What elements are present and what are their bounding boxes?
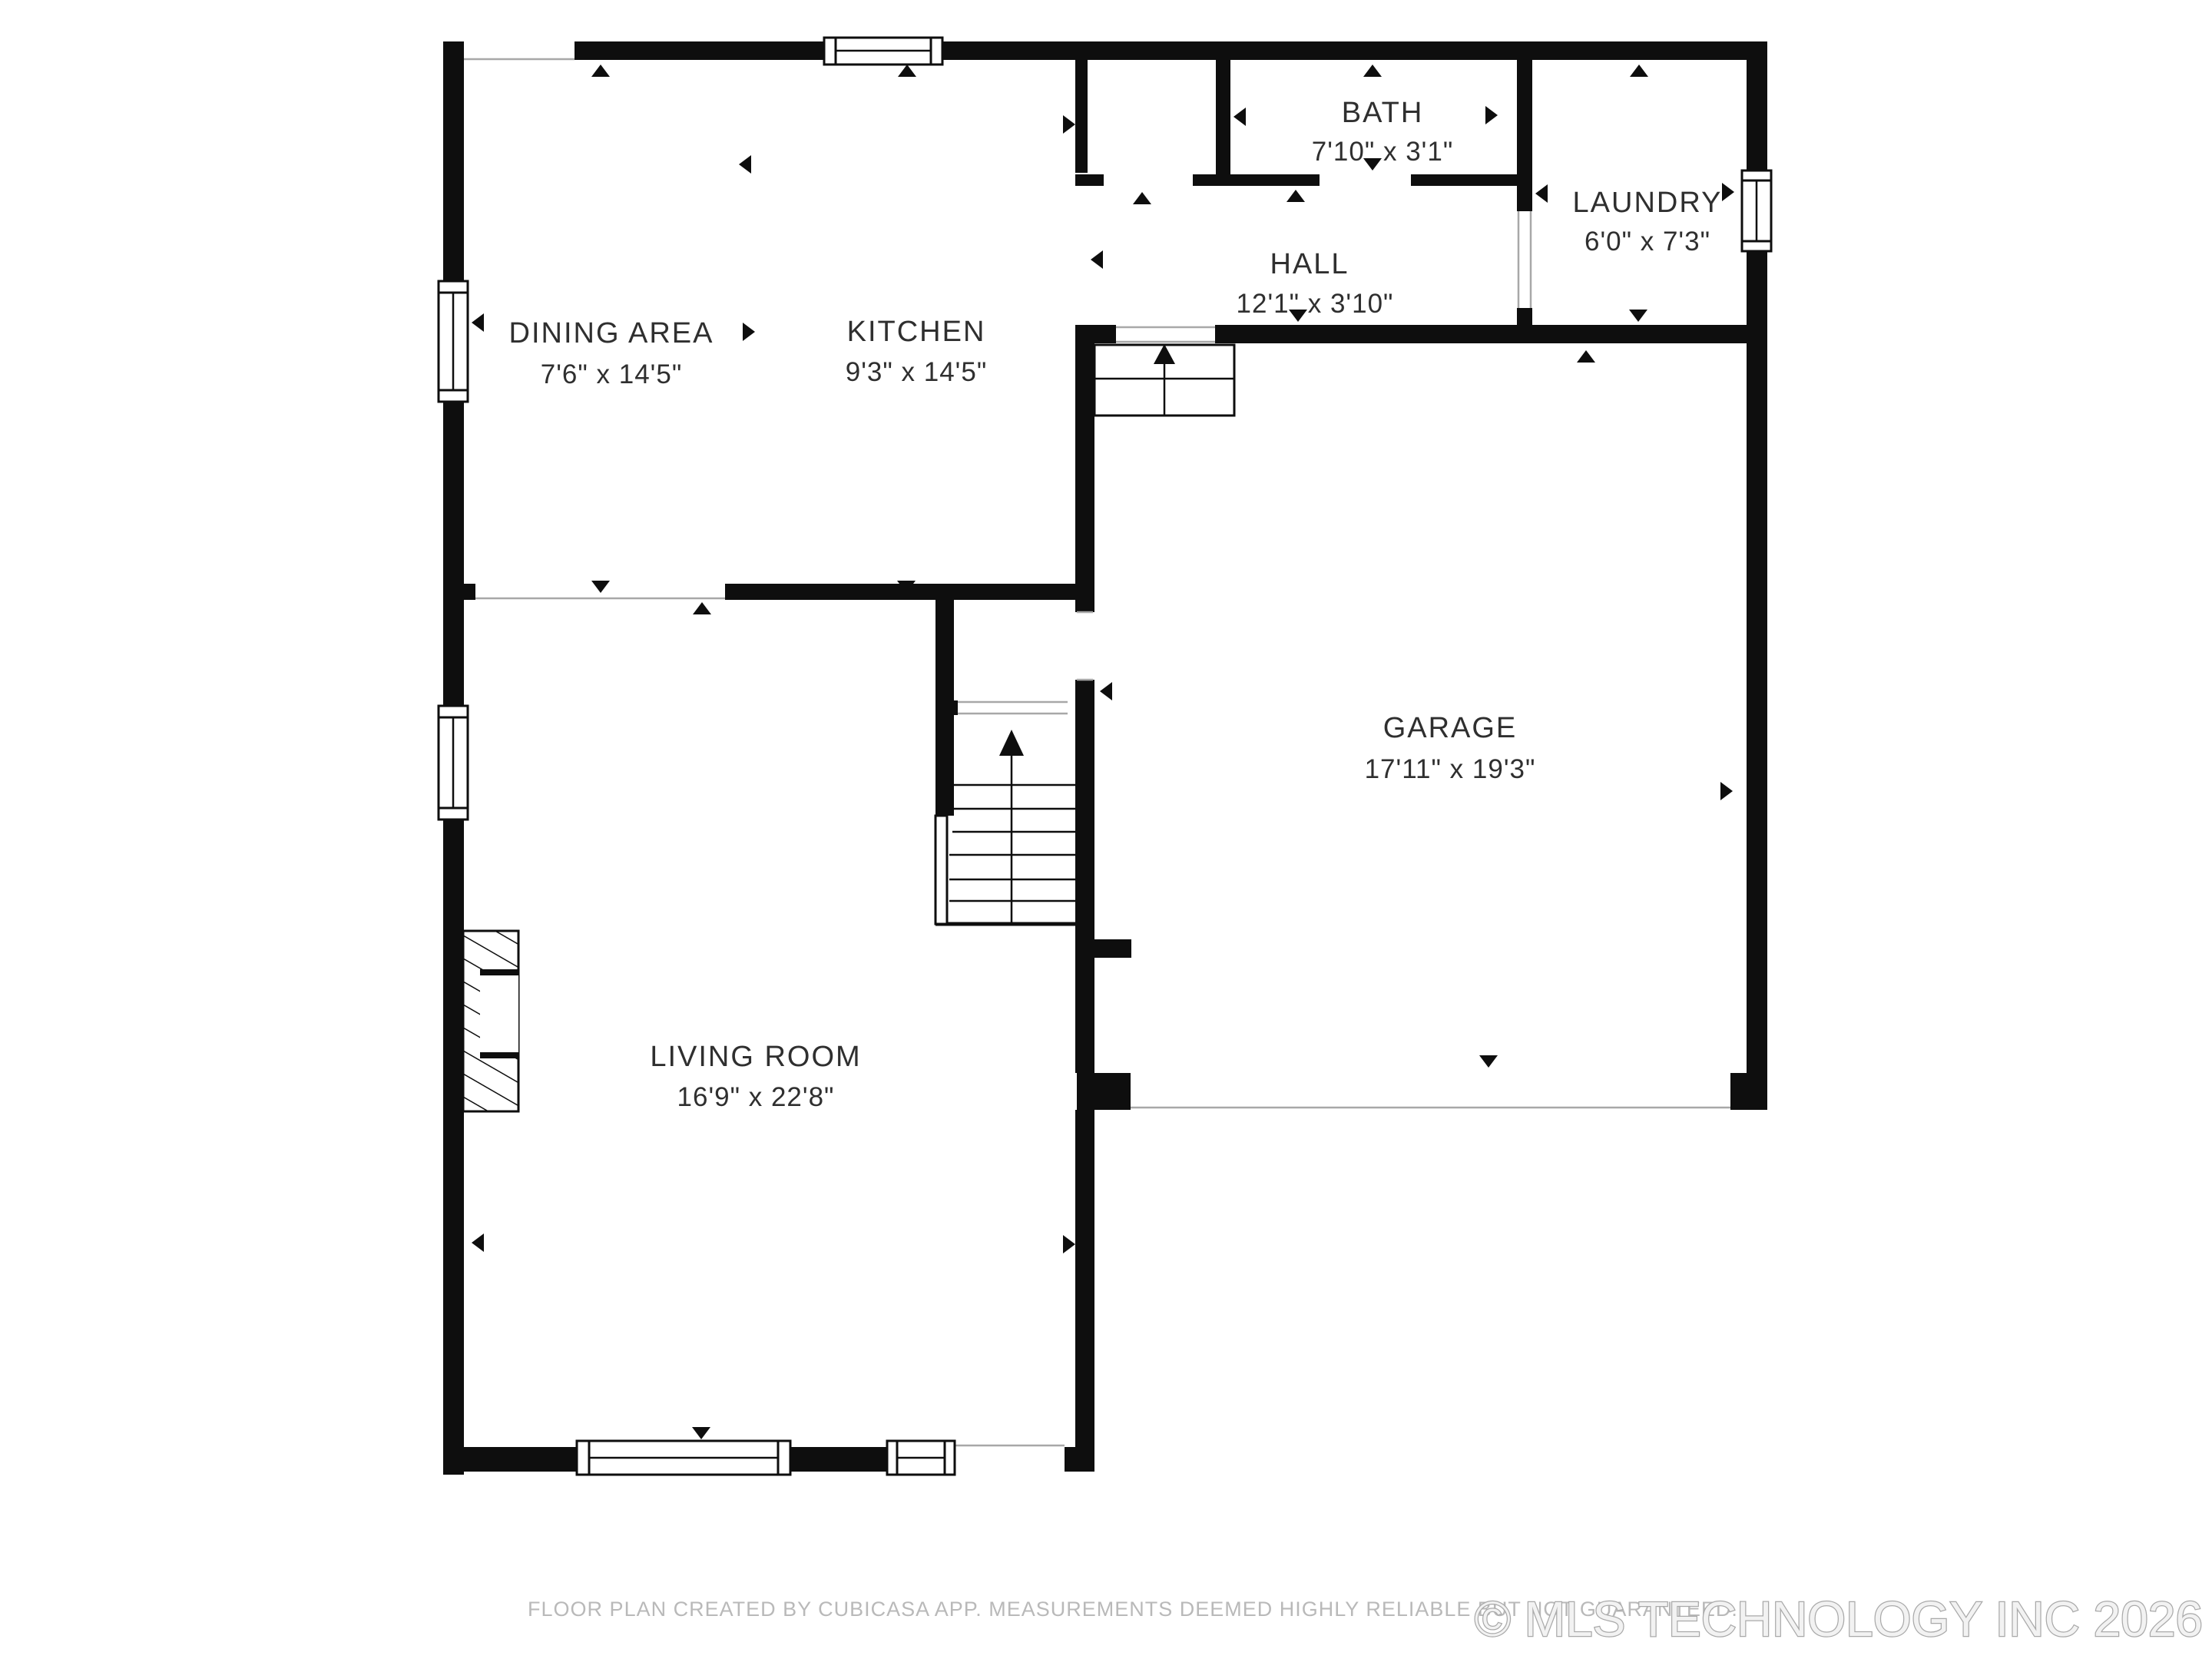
room-label-kitchen: KITCHEN [847, 316, 986, 348]
room-label-garage: GARAGE [1383, 712, 1518, 744]
living-room-window-left [439, 706, 468, 820]
door-arrow-icons [472, 65, 1734, 1439]
arrow-left-icon [739, 155, 751, 174]
arrow-left-icon [1233, 108, 1246, 126]
arrow-left-icon [1091, 250, 1103, 269]
room-label-living: LIVING ROOM [650, 1041, 861, 1073]
arrow-up-icon [1286, 190, 1305, 202]
living-room-window-bottom-small [887, 1441, 955, 1475]
watermark-text: © MLS TECHNOLOGY INC 2026 [1475, 1591, 2203, 1647]
footer: FLOOR PLAN CREATED BY CUBICASA APP. MEAS… [528, 1591, 2203, 1647]
arrow-left-icon [472, 313, 484, 332]
arrow-down-icon [1629, 310, 1647, 322]
arrow-up-icon [1363, 65, 1382, 77]
arrow-up-icon [1577, 350, 1595, 363]
room-dims-dining: 7'6" x 14'5" [541, 359, 683, 389]
arrow-right-icon [1722, 183, 1734, 201]
floor-plan-page: DINING AREA 7'6" x 14'5" KITCHEN 9'3" x … [0, 0, 2212, 1659]
arrow-up-icon [1133, 192, 1151, 204]
arrow-right-icon [1063, 115, 1075, 134]
room-dims-bath: 7'10" x 3'1" [1312, 137, 1454, 167]
dining-window [439, 281, 468, 402]
room-label-laundry: LAUNDRY [1573, 187, 1723, 219]
arrow-right-icon [1485, 106, 1498, 124]
living-room-window-bottom-large [577, 1441, 790, 1475]
door-openings [464, 59, 1730, 1473]
arrow-up-icon [1630, 65, 1648, 77]
arrow-right-icon [1063, 1235, 1075, 1253]
window-symbols [439, 38, 1771, 1475]
room-dims-laundry: 6'0" x 7'3" [1584, 227, 1710, 257]
laundry-window [1742, 171, 1771, 251]
room-label-dining: DINING AREA [509, 317, 714, 349]
room-labels: DINING AREA 7'6" x 14'5" KITCHEN 9'3" x … [509, 97, 1723, 1112]
main-staircase [935, 730, 1075, 924]
room-dims-living: 16'9" x 22'8" [677, 1082, 835, 1112]
arrow-right-icon [743, 323, 755, 341]
arrow-down-icon [1479, 1055, 1498, 1068]
room-dims-kitchen: 9'3" x 14'5" [846, 357, 988, 387]
arrow-up-icon [693, 602, 711, 614]
exterior-walls [443, 41, 1767, 1475]
room-dims-garage: 17'11" x 19'3" [1365, 754, 1536, 784]
room-label-hall: HALL [1270, 248, 1349, 280]
room-dims-hall: 12'1" x 3'10" [1237, 289, 1394, 319]
arrow-down-icon [692, 1427, 710, 1439]
floor-plan-drawing: DINING AREA 7'6" x 14'5" KITCHEN 9'3" x … [0, 0, 2212, 1659]
garage-entry-steps [1094, 344, 1234, 416]
room-label-bath: BATH [1342, 97, 1424, 129]
arrow-up-icon [898, 65, 916, 77]
kitchen-window [824, 38, 942, 65]
arrow-down-icon [591, 581, 610, 593]
arrow-left-icon [1100, 682, 1112, 700]
arrow-right-icon [1720, 782, 1733, 800]
arrow-left-icon [472, 1233, 484, 1252]
arrow-left-icon [1535, 184, 1548, 203]
fireplace-symbol [463, 931, 518, 1111]
arrow-up-icon [591, 65, 610, 77]
interior-walls [460, 60, 1767, 1447]
